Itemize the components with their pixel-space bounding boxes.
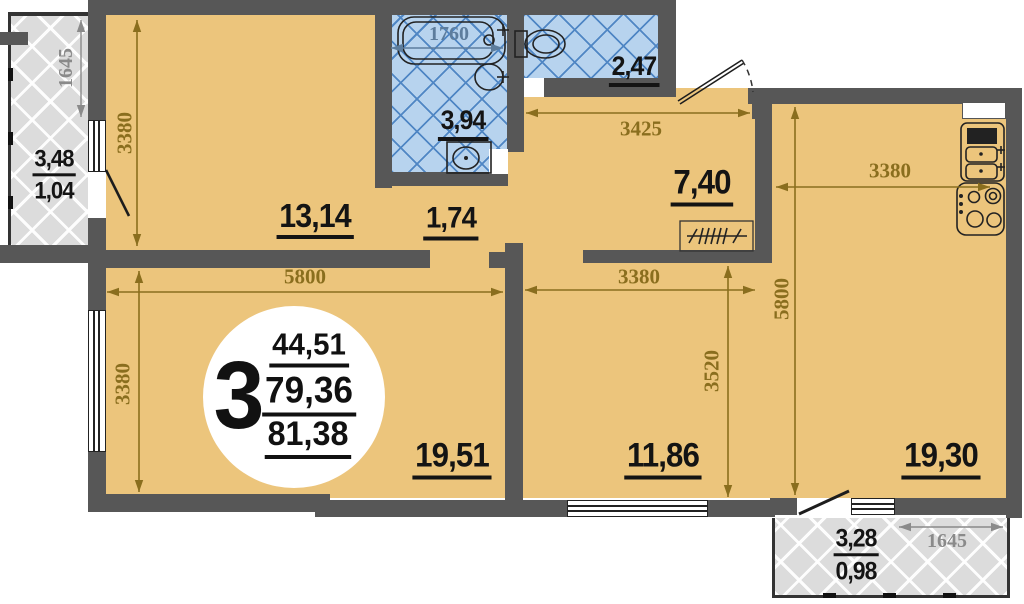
- living-area-total: 44,51: [269, 329, 348, 368]
- living-area-label: 19,51: [412, 439, 491, 480]
- dim-bedroom1-3380: 3380: [115, 112, 136, 154]
- dim-kitchen-3380: 3380: [869, 161, 911, 182]
- dim-arrowhead: [991, 523, 1003, 531]
- dim-arrowhead: [135, 271, 143, 283]
- dim-arrowhead: [899, 523, 911, 531]
- bedroom1-area-label: 13,14: [277, 199, 354, 239]
- plan-overlay: [0, 0, 1024, 604]
- washbasin-icon: [475, 64, 509, 90]
- usable-area-total: 79,36: [262, 372, 356, 417]
- dim-arrowhead: [491, 44, 503, 52]
- wc-area-label: 2,47: [609, 53, 659, 87]
- dim-arrowhead: [724, 266, 732, 278]
- dim-arrowhead: [791, 483, 799, 495]
- dim-arrowhead: [526, 109, 538, 117]
- balcony-bottom-door-leaf: [799, 491, 849, 514]
- dim-arrowhead: [77, 105, 85, 117]
- dim-arrowhead: [738, 109, 750, 117]
- dim-bedroom2-3380: 3380: [618, 267, 660, 288]
- total-area: 81,38: [265, 417, 352, 459]
- dim-arrowhead: [791, 107, 799, 119]
- dim-kitchen-5800: 5800: [772, 278, 793, 320]
- dim-balcony-bottom-1645: 1645: [927, 531, 967, 551]
- dim-arrowhead: [391, 44, 403, 52]
- dim-arrowhead: [133, 234, 141, 246]
- dim-balcony-left-1645: 1645: [56, 48, 76, 88]
- balcony-left-label: 3,48 1,04: [33, 146, 76, 203]
- dim-width-5800: 5800: [284, 267, 326, 288]
- kitchen-sink-icon: [961, 123, 1005, 181]
- dim-bedroom2-3520: 3520: [702, 350, 723, 392]
- dim-arrowhead: [776, 183, 788, 191]
- dim-arrowhead: [107, 288, 119, 296]
- washing-machine-icon: [447, 142, 491, 173]
- balcony-left-door-leaf: [106, 170, 129, 216]
- closet-icon: [680, 221, 753, 251]
- toilet-icon: [515, 30, 565, 58]
- dim-bathtub-1760: 1760: [429, 24, 469, 44]
- dim-arrowhead: [743, 286, 755, 294]
- corridor-area-label: 7,40: [671, 166, 734, 207]
- hall-area-label: 1,74: [423, 204, 479, 241]
- bedroom2-area-label: 11,86: [624, 439, 701, 480]
- dim-arrowhead: [525, 286, 537, 294]
- apartment-summary-badge: 3 44,51 79,36 81,38: [203, 306, 385, 488]
- bathroom-area-label: 3,94: [438, 107, 488, 141]
- dim-arrowhead: [135, 480, 143, 492]
- stove-icon: [957, 183, 1004, 235]
- dim-corridor-3425: 3425: [620, 119, 662, 140]
- rooms-count: 3: [214, 348, 265, 444]
- dim-arrowhead: [724, 485, 732, 497]
- dim-arrowhead: [491, 288, 503, 296]
- dim-arrowhead: [77, 20, 85, 32]
- floor-plan: 13,14 1,74 3,94 2,47 7,40 19,51 11,86 19…: [0, 0, 1024, 604]
- dim-arrowhead: [133, 20, 141, 32]
- balcony-bottom-label: 3,28 0,98: [834, 525, 879, 585]
- dim-living-3380: 3380: [113, 363, 134, 405]
- dimension-lines: [77, 20, 1003, 531]
- entrance-door-icon: [678, 60, 753, 104]
- kitchen-area-label: 19,30: [901, 439, 980, 480]
